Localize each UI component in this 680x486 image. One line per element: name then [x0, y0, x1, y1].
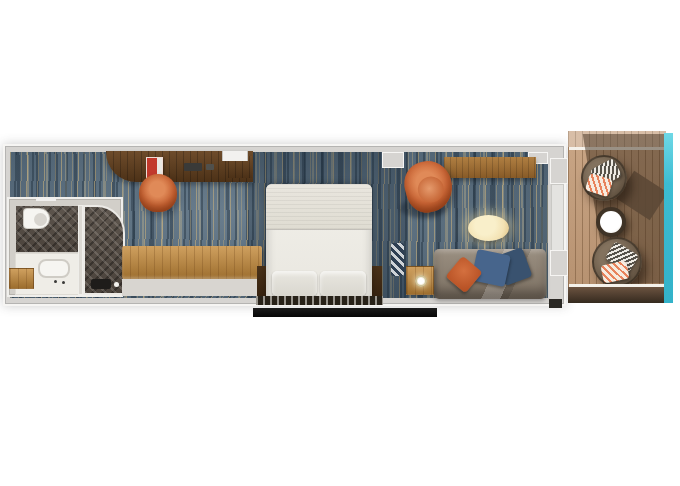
desk-chair: [139, 174, 177, 212]
shower-fixture: [91, 279, 111, 289]
table-top: [600, 211, 622, 233]
bed-pillow-left: [272, 271, 317, 296]
balcony-door-panel: [551, 184, 564, 254]
bathroom: [7, 197, 123, 297]
towel-shelf: [9, 268, 34, 289]
toilet: [23, 208, 50, 229]
corridor-trim-bar: [253, 308, 437, 317]
wall-stub-mid: [382, 152, 404, 168]
balcony-chair-top: [581, 155, 627, 201]
closet-door-notch: [222, 151, 248, 161]
entry-floor: [122, 279, 264, 296]
headboard: [256, 296, 383, 305]
shower-drain: [114, 282, 119, 287]
faucet-dot: [62, 281, 65, 284]
door-jamb-bottom: [550, 250, 568, 276]
side-table: [406, 266, 434, 295]
glass-railing: [664, 133, 675, 303]
deck-bottom-shadow-band: [568, 287, 666, 303]
dresser-bench: [122, 246, 262, 279]
desk-accessory: [184, 163, 202, 171]
floorplan-canvas: [0, 0, 680, 486]
faucet-dot: [54, 280, 57, 283]
balcony-deck: [568, 131, 666, 303]
toilet-bowl: [34, 213, 47, 226]
bed-pillow-right: [320, 271, 366, 296]
balcony-round-table: [596, 207, 626, 237]
oval-ottoman-table: [468, 215, 509, 241]
door-jamb-top: [550, 158, 568, 184]
table-lamp: [415, 275, 427, 287]
sink: [38, 259, 70, 278]
lounge-wall-shelf: [444, 157, 536, 178]
stateroom-floorplan: [0, 0, 680, 486]
chevron-pouf: [391, 243, 404, 276]
shower-stall: [83, 205, 125, 295]
double-bed: [266, 184, 372, 298]
wall-corner-shadow: [549, 299, 562, 308]
bed-blanket: [266, 184, 372, 230]
chair-pillow-coral: [600, 260, 629, 283]
desk-accessory: [206, 164, 214, 170]
armchair-seat: [415, 174, 447, 206]
balcony-chair-bottom: [592, 237, 642, 287]
bathroom-door-gap: [36, 197, 56, 201]
